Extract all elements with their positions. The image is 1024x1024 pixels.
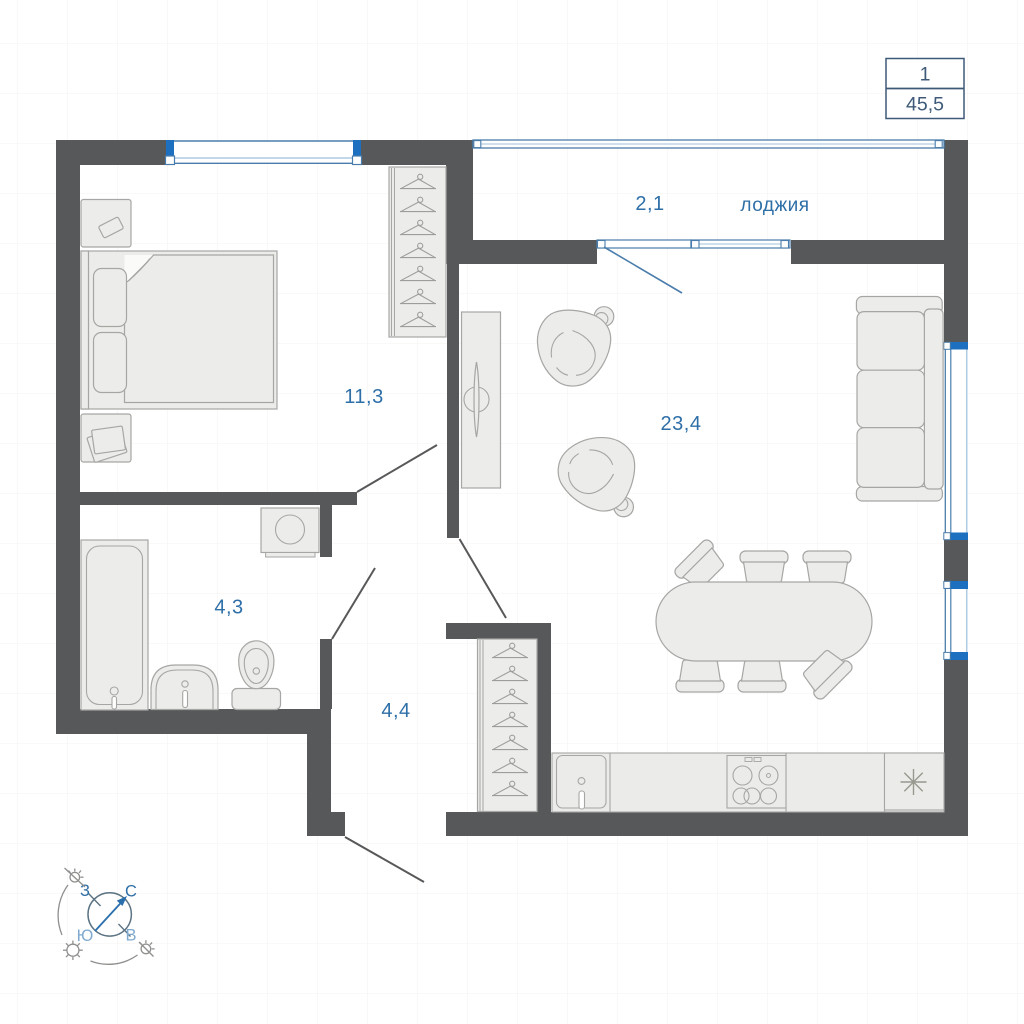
svg-text:4,3: 4,3	[214, 597, 243, 619]
svg-text:4,4: 4,4	[381, 700, 410, 722]
svg-text:23,4: 23,4	[661, 413, 702, 435]
svg-text:Ю: Ю	[77, 927, 94, 945]
svg-text:З: З	[80, 882, 90, 900]
svg-text:11,3: 11,3	[344, 386, 383, 408]
svg-text:2,1: 2,1	[635, 193, 664, 215]
svg-text:С: С	[125, 883, 137, 901]
svg-text:В: В	[125, 927, 136, 945]
svg-text:лоджия: лоджия	[740, 195, 809, 216]
svg-text:45,5: 45,5	[906, 94, 944, 116]
svg-text:1: 1	[920, 64, 931, 86]
